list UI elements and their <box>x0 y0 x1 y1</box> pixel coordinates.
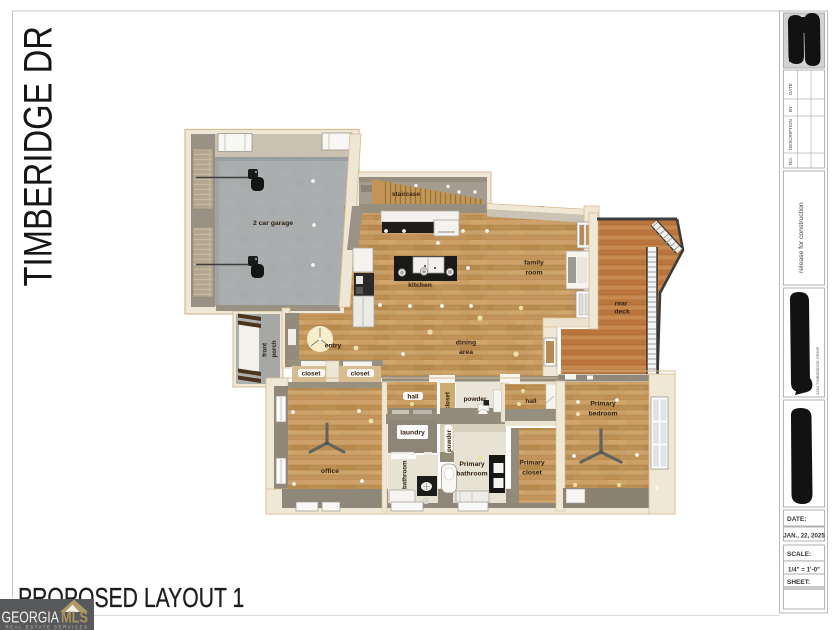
svg-text:rear: rear <box>615 301 628 308</box>
svg-text:hall: hall <box>407 394 418 401</box>
svg-text:powder: powder <box>446 429 453 452</box>
svg-text:MLS: MLS <box>61 609 88 627</box>
svg-text:laundry: laundry <box>400 430 425 437</box>
svg-text:JAN., 22, 2025: JAN., 22, 2025 <box>783 533 825 540</box>
svg-text:dining: dining <box>456 340 476 347</box>
svg-text:closet: closet <box>522 470 542 477</box>
svg-text:closet: closet <box>445 392 452 410</box>
svg-text:NO.: NO. <box>788 157 793 165</box>
svg-text:bathroom: bathroom <box>402 460 409 489</box>
svg-text:family: family <box>524 260 544 267</box>
svg-text:porch: porch <box>271 340 278 357</box>
svg-text:hall: hall <box>525 398 536 405</box>
svg-text:area: area <box>459 349 473 356</box>
svg-text:Primary: Primary <box>519 460 545 467</box>
svg-text:powder: powder <box>463 396 487 403</box>
svg-text:office: office <box>321 468 339 475</box>
svg-text:Primary: Primary <box>590 401 616 408</box>
svg-text:DESCRIPTION: DESCRIPTION <box>788 119 793 150</box>
svg-text:bedroom: bedroom <box>588 411 617 418</box>
svg-text:2 car garage: 2 car garage <box>253 220 293 227</box>
svg-text:release for construction: release for construction <box>798 202 805 273</box>
svg-text:front: front <box>262 343 269 357</box>
svg-text:kitchen: kitchen <box>408 282 432 289</box>
svg-text:1254 TIMBERIDGE DRIVE: 1254 TIMBERIDGE DRIVE <box>815 347 820 395</box>
svg-text:bathroom: bathroom <box>456 471 487 478</box>
svg-text:REAL ESTATE SERVICES: REAL ESTATE SERVICES <box>5 625 88 630</box>
svg-text:closet: closet <box>351 371 371 378</box>
svg-text:room: room <box>526 270 543 277</box>
svg-text:BY: BY <box>788 106 793 112</box>
svg-text:staircase: staircase <box>392 191 421 198</box>
svg-text:1/4" = 1'-0": 1/4" = 1'-0" <box>788 567 820 574</box>
svg-text:SHEET:: SHEET: <box>787 579 810 586</box>
svg-text:deck: deck <box>614 309 630 316</box>
svg-text:entry: entry <box>325 343 342 350</box>
svg-text:closet: closet <box>302 371 322 378</box>
svg-text:DATE: DATE <box>788 83 793 95</box>
svg-text:TIMBERIDGE DR: TIMBERIDGE DR <box>15 26 60 286</box>
svg-text:DATE:: DATE: <box>787 516 806 523</box>
svg-text:Primary: Primary <box>459 461 485 468</box>
svg-text:GEORGIA: GEORGIA <box>2 609 60 627</box>
svg-text:SCALE:: SCALE: <box>787 551 811 558</box>
